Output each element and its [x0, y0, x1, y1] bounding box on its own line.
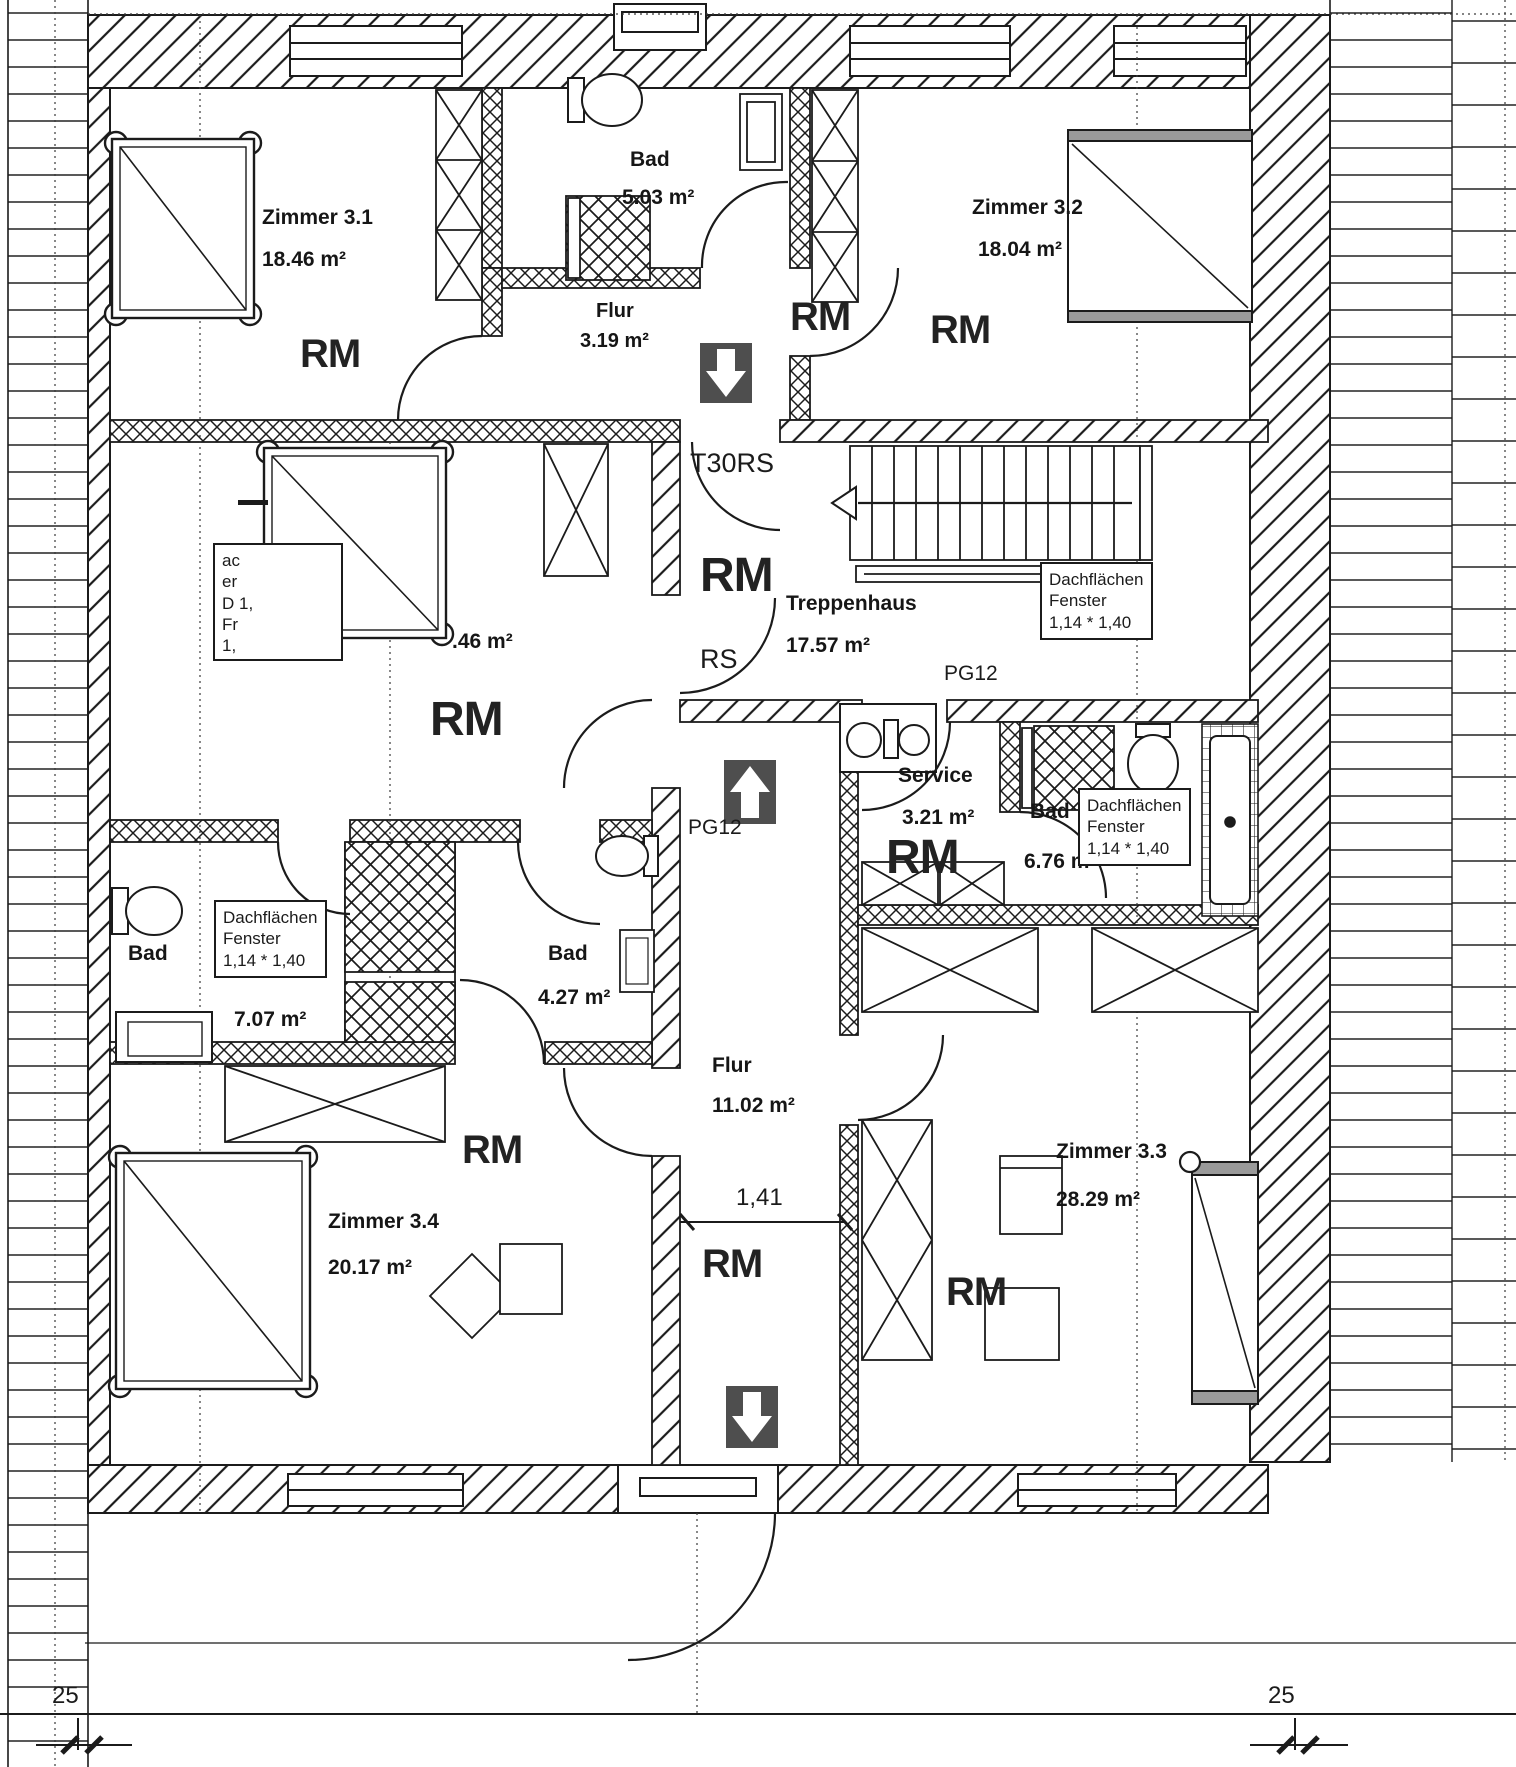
room-name-flur-top: Flur: [596, 300, 634, 323]
roof-window-room-mid-left: [544, 444, 608, 576]
corridor-width-dimension: 1,41: [736, 1184, 783, 1212]
room-area-service: 3.21 m²: [902, 806, 974, 830]
shelf-bad-small: [620, 930, 654, 992]
room-name-service: Service: [898, 764, 973, 788]
room-name-bad-mid: Bad: [1030, 800, 1070, 824]
note-line: Dachflächen: [1049, 569, 1144, 590]
partial-note-line: Fr: [222, 614, 334, 635]
smoke-detector-label: RM: [700, 548, 773, 603]
bed-zimmer-3-2: [1068, 130, 1252, 322]
skylight-note-treppenhaus: Dachflächen Fenster 1,14 * 1,40: [1040, 562, 1153, 640]
smoke-detector-label: RM: [790, 295, 850, 340]
washer-service: [840, 704, 936, 772]
room-name-zimmer-3-1: Zimmer 3.1: [262, 206, 373, 230]
room-area-bad-left: 7.07 m²: [234, 1008, 306, 1032]
sink-bad-left: [116, 1012, 212, 1062]
partial-note-line: 1,: [222, 635, 334, 656]
room-area-mid-left: .46 m²: [452, 630, 513, 654]
wardrobe-zimmer-3-3: [862, 1120, 932, 1360]
smoke-detector-label: RM: [702, 1242, 762, 1287]
bed-zimmer-3-3: [1180, 1152, 1258, 1404]
note-line: Fenster: [1049, 590, 1144, 611]
room-area-flur-top: 3.19 m²: [580, 330, 649, 353]
wardrobe-zimmer-3-2: [812, 90, 858, 302]
sink-bad-top: [740, 94, 782, 170]
bed-zimmer-3-1: [105, 132, 261, 325]
skylight-note-bad-mid: Dachflächen Fenster 1,14 * 1,40: [1078, 788, 1191, 866]
exit-down-arrow-sign-2: [726, 1386, 778, 1448]
room-name-bad-left: Bad: [128, 942, 168, 966]
partial-skylight-note: ac er D 1, Fr 1,: [213, 543, 343, 661]
smoke-detector-label: RM: [886, 830, 959, 885]
pg12-label: PG12: [688, 816, 742, 840]
note-line: 1,14 * 1,40: [1087, 838, 1182, 859]
note-line: 1,14 * 1,40: [1049, 612, 1144, 633]
smoke-detector-label: RM: [462, 1128, 522, 1173]
pg12-label: PG12: [944, 662, 998, 686]
room-name-zimmer-3-3: Zimmer 3.3: [1056, 1140, 1167, 1164]
wardrobe-zimmer-3-1: [436, 90, 482, 300]
room-name-bad-top: Bad: [630, 148, 670, 172]
bed-zimmer-3-4: [109, 1146, 317, 1397]
toilet-bad-top: [568, 74, 642, 126]
floor-plan: Zimmer 3.1 18.46 m² RM Bad 5.03 m² Flur …: [0, 0, 1516, 1767]
room-area-treppenhaus: 17.57 m²: [786, 634, 870, 658]
room-name-zimmer-3-2: Zimmer 3.2: [972, 196, 1083, 220]
room-area-bad-top: 5.03 m²: [622, 186, 694, 210]
room-area-zimmer-3-4: 20.17 m²: [328, 1256, 412, 1280]
shower-column: [345, 842, 455, 1042]
room-area-zimmer-3-2: 18.04 m²: [978, 238, 1062, 262]
room-name-bad-small: Bad: [548, 942, 588, 966]
sink-bad-small: [596, 836, 658, 876]
bathtub-bad-mid: [1202, 724, 1258, 916]
room-name-zimmer-3-4: Zimmer 3.4: [328, 1210, 439, 1234]
roof-dimension-left: 25: [52, 1682, 79, 1710]
dresser-zimmer-3-4: [225, 1066, 445, 1142]
exit-down-arrow-sign: [700, 343, 752, 403]
smoke-detector-label: RM: [430, 692, 503, 747]
room-name-flur-main: Flur: [712, 1054, 752, 1078]
partial-note-line: er: [222, 571, 334, 592]
toilet-bad-mid: [1128, 724, 1178, 793]
roof-dimension-right: 25: [1268, 1682, 1295, 1710]
partial-note-line: ac: [222, 550, 334, 571]
note-line: Fenster: [223, 928, 318, 949]
skylight-note-bad-left: Dachflächen Fenster 1,14 * 1,40: [214, 900, 327, 978]
note-line: 1,14 * 1,40: [223, 950, 318, 971]
note-line: Fenster: [1087, 816, 1182, 837]
exit-up-arrow-sign: [724, 760, 776, 824]
smoke-detector-label: RM: [930, 308, 990, 353]
rs-door-label: RS: [700, 644, 738, 675]
room-area-bad-small: 4.27 m²: [538, 986, 610, 1010]
room-area-flur-main: 11.02 m²: [712, 1094, 795, 1118]
note-line: Dachflächen: [1087, 795, 1182, 816]
room-area-zimmer-3-3: 28.29 m²: [1056, 1188, 1140, 1212]
note-dash: [238, 500, 268, 505]
toilet-bad-left: [112, 887, 182, 935]
note-line: Dachflächen: [223, 907, 318, 928]
partial-note-line: D 1,: [222, 593, 334, 614]
roof-band-left: [8, 0, 88, 1767]
floor-plan-drawing: [0, 0, 1516, 1767]
room-name-treppenhaus: Treppenhaus: [786, 592, 917, 616]
roof-band-right: [1330, 0, 1516, 1462]
smoke-detector-label: RM: [946, 1270, 1006, 1315]
smoke-detector-label: RM: [300, 332, 360, 377]
fire-door-label: T30RS: [690, 448, 774, 479]
room-area-zimmer-3-1: 18.46 m²: [262, 248, 346, 272]
